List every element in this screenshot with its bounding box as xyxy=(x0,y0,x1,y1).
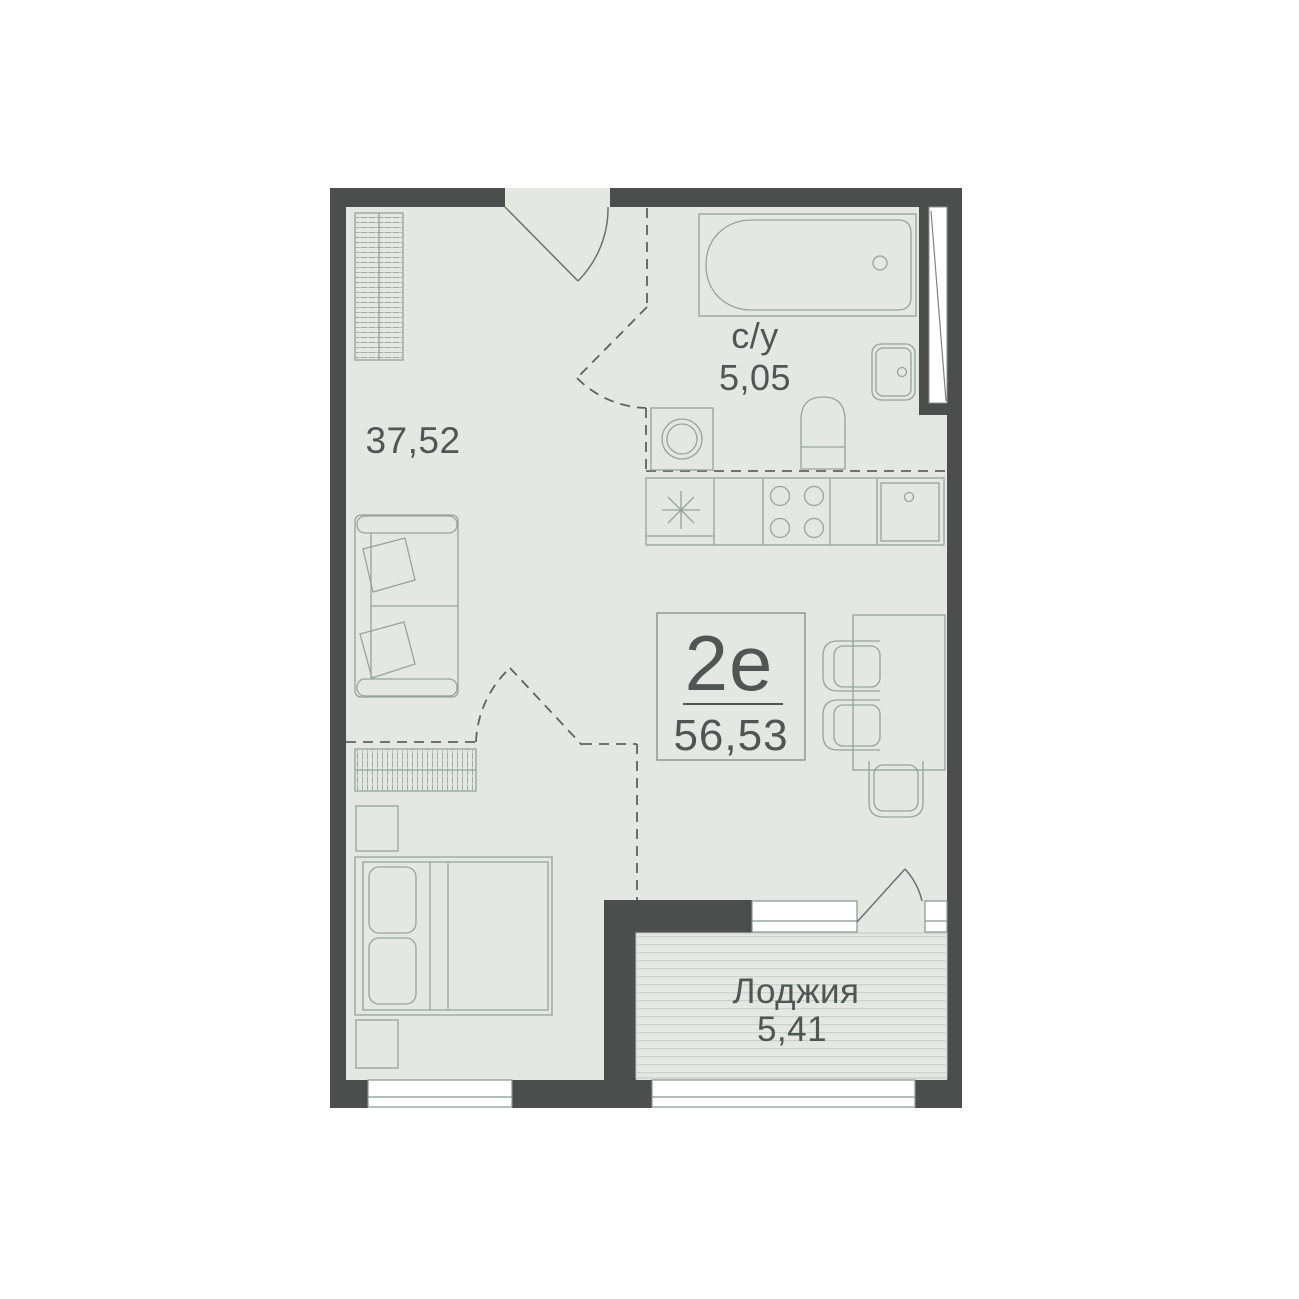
wall-bathroom-right xyxy=(919,207,929,415)
vent-shaft-icon xyxy=(929,207,947,403)
unit-total-area: 56,53 xyxy=(673,711,788,760)
wall-right xyxy=(947,188,962,1108)
wall-bottom-left-block xyxy=(330,1080,368,1108)
wall-top-right xyxy=(610,188,962,207)
window-loggia-top-right xyxy=(925,901,947,932)
window-loggia-top-left xyxy=(752,901,857,932)
wall-bottom-right xyxy=(915,1080,962,1108)
bathroom-label: с/у xyxy=(731,315,779,356)
wall-bottom-mid xyxy=(512,1080,652,1108)
main-room-area: 37,52 xyxy=(365,420,460,461)
window-bedroom xyxy=(368,1080,512,1107)
loggia-area: 5,41 xyxy=(757,1010,827,1049)
wall-loggia-top xyxy=(604,900,752,933)
unit-label-box: 2е 56,53 xyxy=(657,613,805,760)
wall-left xyxy=(330,188,346,1080)
bathroom-area: 5,05 xyxy=(719,357,791,398)
window-loggia-bottom xyxy=(652,1080,915,1107)
wall-vent-cap xyxy=(929,403,947,415)
dresser-icon xyxy=(355,749,476,791)
loggia-label: Лоджия xyxy=(732,972,859,1011)
wall-top-left xyxy=(330,188,505,207)
wardrobe-icon xyxy=(355,213,403,360)
floor-plan: 2е 56,53 37,52 с/у 5,05 Лоджия 5,41 xyxy=(0,0,1299,1299)
unit-type-label: 2е xyxy=(685,619,774,707)
